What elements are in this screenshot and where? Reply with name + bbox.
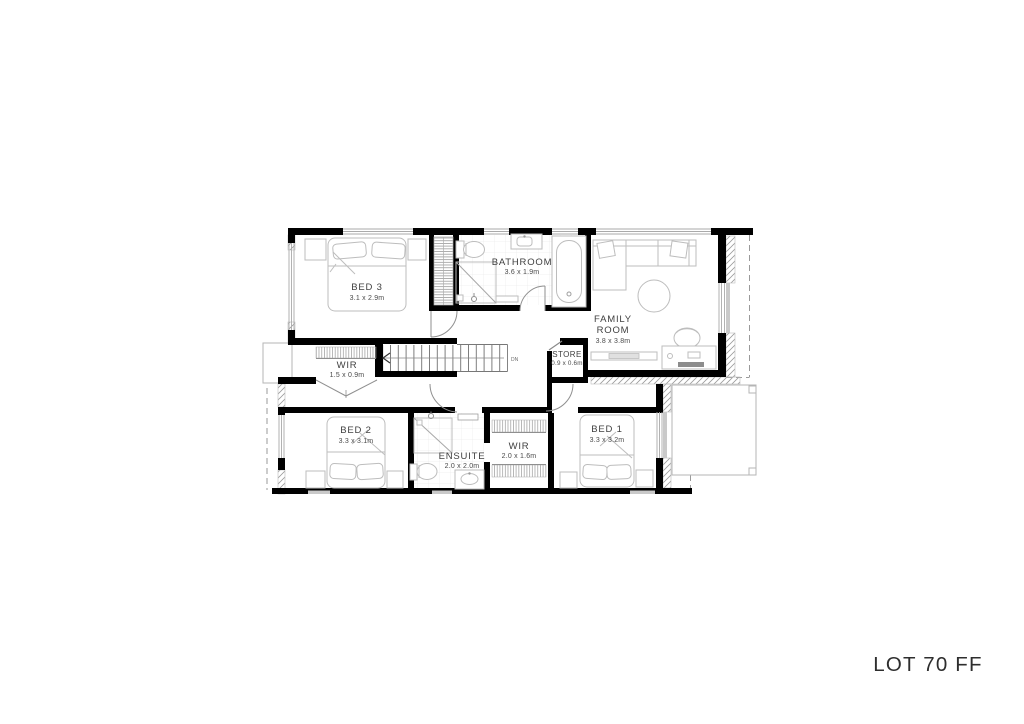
room-dims-bathroom: 3.6 x 1.9m xyxy=(505,269,540,276)
room-dims-family-room: 3.8 x 3.8m xyxy=(596,338,631,345)
window-top-family-room xyxy=(596,229,711,234)
ensuite-niche xyxy=(458,414,478,420)
bedside-table xyxy=(305,239,326,260)
room-dims-bed1: 3.3 x 3.2m xyxy=(590,437,625,444)
room-label-bed3: BED 3 xyxy=(351,282,382,293)
room-label-store: STORE xyxy=(552,350,581,359)
room-dims-bed3: 3.1 x 2.9m xyxy=(350,295,385,302)
bathtub-icon xyxy=(552,236,586,307)
tv-unit-icon xyxy=(591,352,657,360)
room-dims-wir-upper: 1.5 x 0.9m xyxy=(330,372,365,379)
room-dims-bed2: 3.3 x 3.1m xyxy=(339,438,374,445)
wir-upper-bay xyxy=(316,380,377,396)
room-label-bed1: BED 1 xyxy=(591,424,622,435)
store-door xyxy=(549,341,562,350)
floor-plan-drawing: DN xyxy=(0,0,1024,724)
room-label-bathroom: BATHROOM xyxy=(492,257,553,268)
window-top-bathtub xyxy=(552,229,578,234)
room-label-wir-lower: WIR xyxy=(509,441,530,452)
lot-title: LOT 70 FF xyxy=(873,653,983,676)
stairs-dn-label: DN xyxy=(511,357,519,363)
window-left-bed3 xyxy=(289,243,294,330)
toilet-icon xyxy=(410,464,437,481)
floor-plan-page: DN xyxy=(0,0,1024,724)
sofa-icon xyxy=(593,240,696,290)
stairs: DN xyxy=(383,345,519,372)
room-dims-ensuite: 2.0 x 2.0m xyxy=(445,463,480,470)
room-dims-wir-lower: 2.0 x 1.6m xyxy=(502,453,537,460)
pillow xyxy=(583,464,608,480)
window-right-bed1 xyxy=(657,412,662,458)
pillow xyxy=(357,463,384,480)
balcony-post xyxy=(749,468,756,475)
vanity-icon xyxy=(455,470,484,489)
bath-shelf xyxy=(496,296,518,302)
room-label-family-room-line1: FAMILY xyxy=(594,314,632,325)
room-label-ensuite: ENSUITE xyxy=(439,451,486,462)
rug-icon xyxy=(638,280,670,312)
bedside-table xyxy=(387,471,403,488)
bedside-table xyxy=(306,471,325,488)
wir-upper-rail xyxy=(316,347,376,359)
window-right-family-room xyxy=(719,283,725,333)
room-label-wir-upper: WIR xyxy=(337,360,358,371)
cushion xyxy=(670,241,688,258)
pillow xyxy=(371,242,405,259)
balcony xyxy=(672,385,756,475)
desk-and-chair-icon xyxy=(662,328,716,369)
vanity-icon xyxy=(511,234,542,249)
pillow xyxy=(330,463,357,479)
room-label-bed2: BED 2 xyxy=(340,425,371,436)
balcony-post xyxy=(749,386,756,393)
pillow xyxy=(607,464,632,479)
window-top-bed3 xyxy=(343,229,413,234)
bed3-door xyxy=(431,311,457,337)
cushion xyxy=(597,241,615,259)
bedside-table xyxy=(408,239,426,260)
family-room-furniture xyxy=(591,240,716,369)
bedside-table xyxy=(636,470,653,487)
toilet-icon xyxy=(456,241,485,258)
room-label-family-room-line2: ROOM xyxy=(597,325,630,336)
window-left-bed2 xyxy=(279,415,284,458)
room-dims-store: 0.9 x 0.6m xyxy=(551,360,582,367)
bedside-table xyxy=(560,472,577,488)
window-top-bathroom xyxy=(484,229,509,234)
